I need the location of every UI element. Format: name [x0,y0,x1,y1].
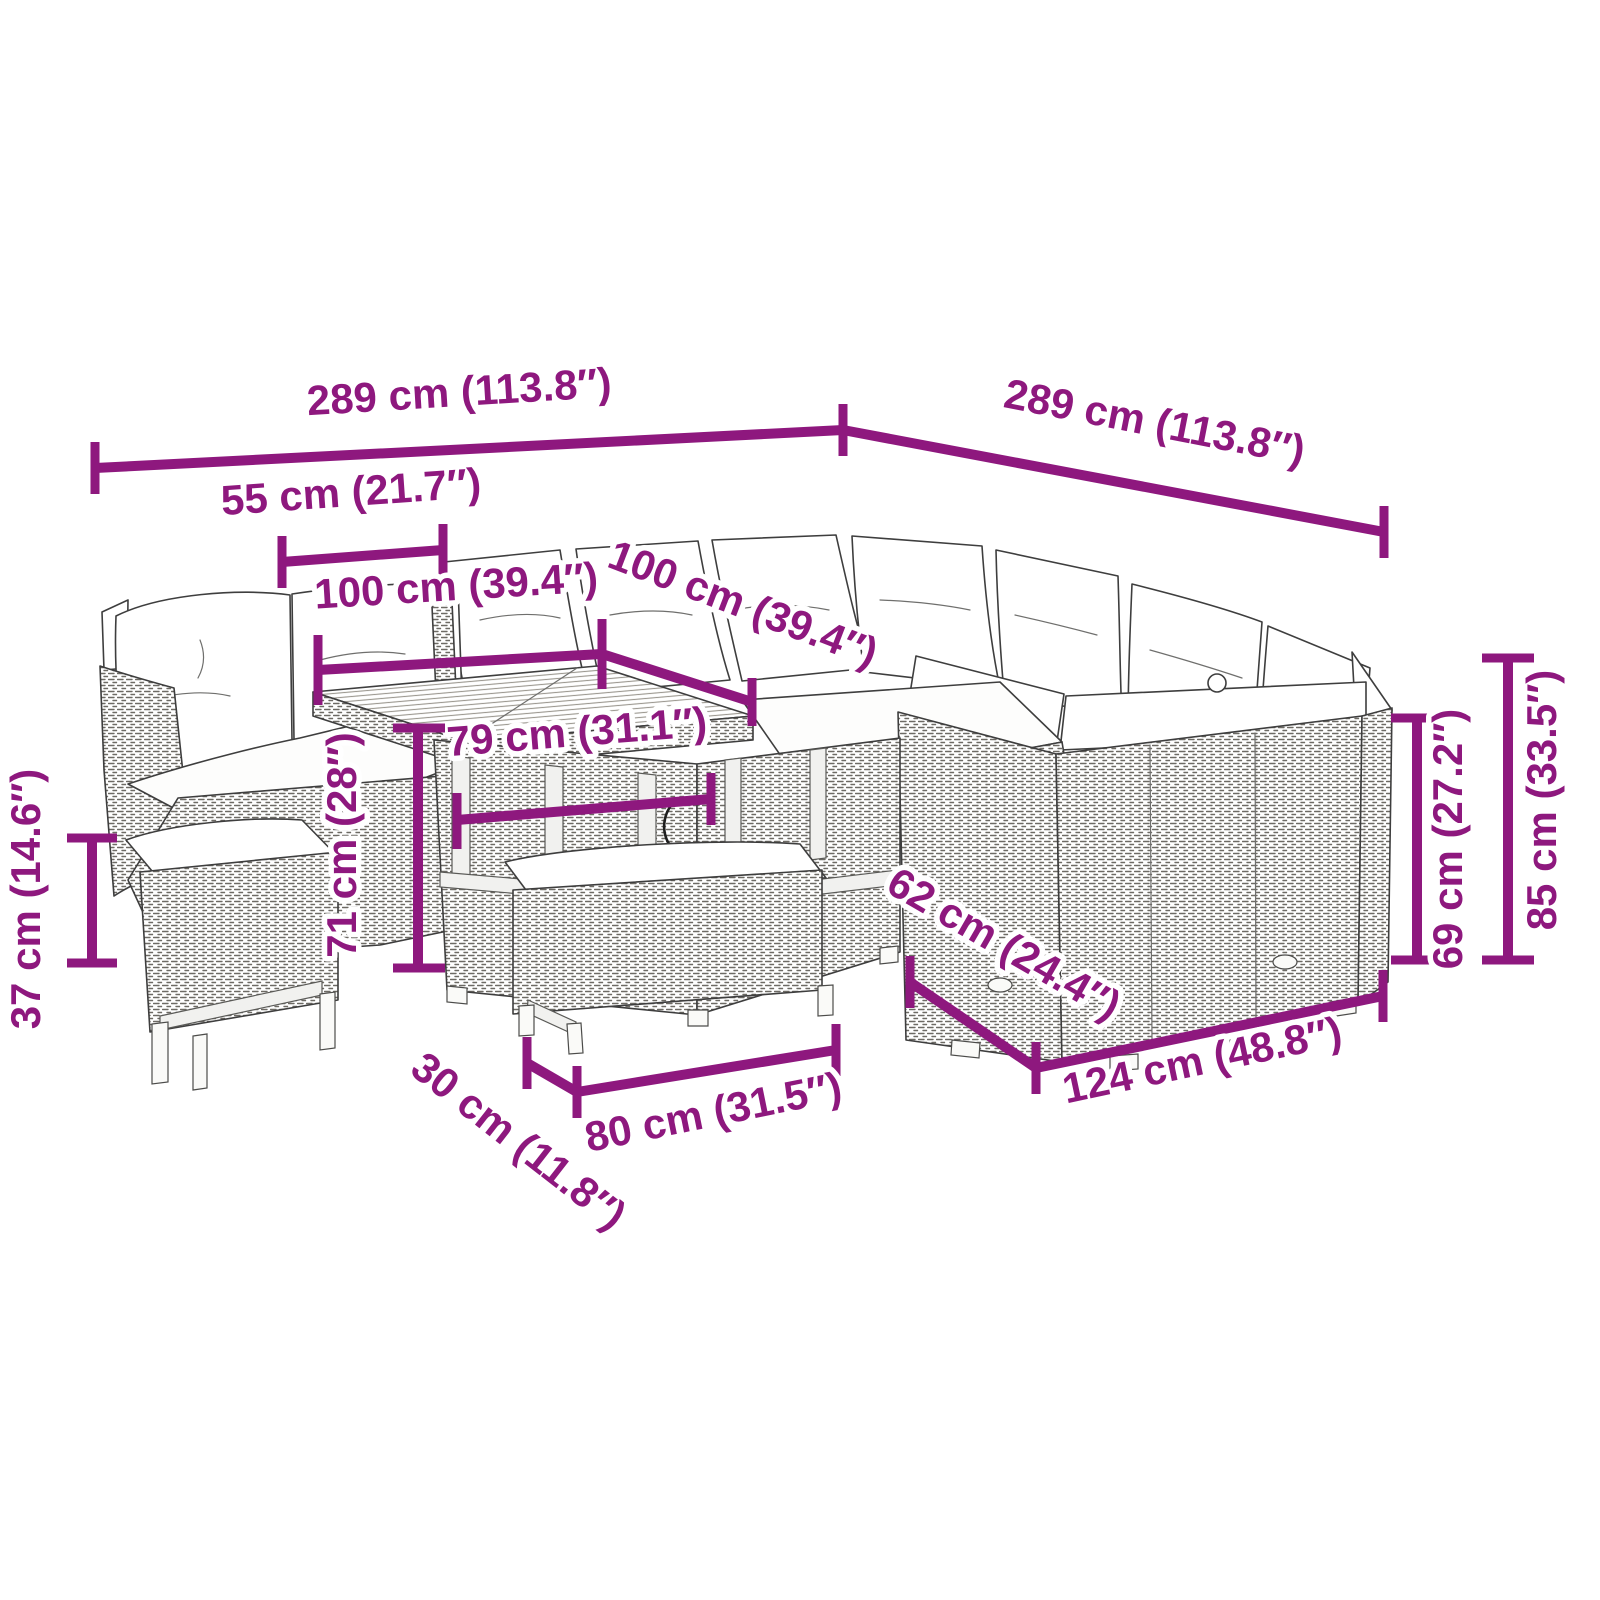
dimension-bench-length: 80 cm (31.5″) [577,1024,845,1161]
bench-body [513,870,822,1014]
bench-front [505,842,833,1054]
dimension-label: 37 cm (14.6″) [2,769,49,1030]
dimension-label: 85 cm (33.5″) [1518,670,1565,931]
dimension-label: 69 cm (27.2″) [1424,709,1471,970]
bench-left [126,819,345,1090]
dimension-label: 289 cm (113.8″) [1001,370,1309,474]
dimension-label: 289 cm (113.8″) [305,359,612,425]
dimension-label: 55 cm (21.7″) [219,459,482,524]
dimension-total-height: 85 cm (33.5″) [1482,658,1565,960]
furniture-dimension-diagram: 289 cm (113.8″) 289 cm (113.8″) 55 cm (2… [0,0,1600,1600]
dimension-back-height: 69 cm (27.2″) [1391,709,1471,970]
dimension-width-total-right: 289 cm (113.8″) [843,370,1384,558]
diagram-canvas: 289 cm (113.8″) 289 cm (113.8″) 55 cm (2… [0,0,1600,1600]
dimension-label: 80 cm (31.5″) [581,1063,846,1161]
dimension-bench-height: 37 cm (14.6″) [2,769,117,1030]
dimension-label: 71 cm (28″) [318,732,365,958]
